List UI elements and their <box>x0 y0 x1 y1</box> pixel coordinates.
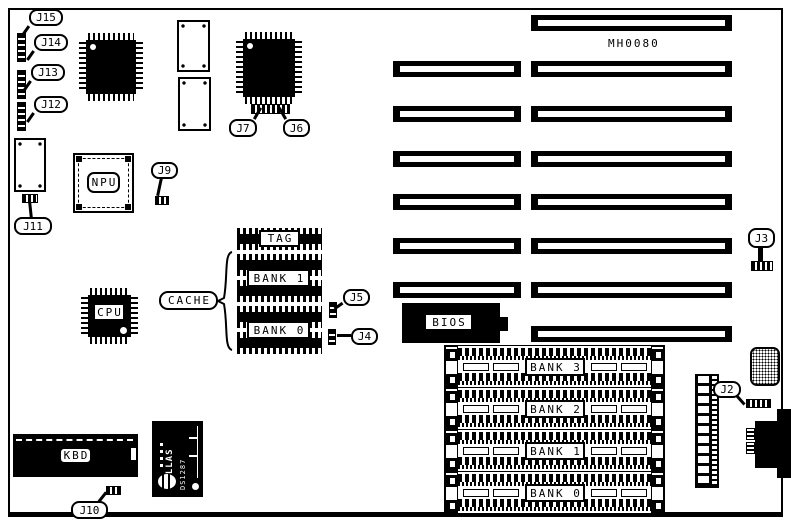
callout-j2-label: J2 <box>720 384 733 395</box>
callout-j3-label: J3 <box>755 233 768 244</box>
dallas-scale-line <box>197 426 198 478</box>
pin-fringe <box>90 337 129 344</box>
pin-fringe <box>295 41 302 95</box>
isa-slot-segment <box>393 282 521 298</box>
isa-slot-segment <box>531 106 732 122</box>
npu-label-text: NPU <box>92 177 118 188</box>
callout-j15: J15 <box>29 9 63 26</box>
callout-j13: J13 <box>31 64 65 81</box>
din-connector-tab <box>746 428 755 440</box>
bank2-label-text: BANK 2 <box>530 404 582 415</box>
cache-group-label: CACHE <box>159 291 218 310</box>
dallas-dot <box>192 483 199 490</box>
memory-bank0-label: BANK 0 <box>525 484 585 502</box>
latch-strip <box>445 346 458 387</box>
pin-fringe <box>79 42 86 92</box>
isa-slot-segment <box>393 238 521 254</box>
bank1-label-text: BANK 1 <box>530 446 582 457</box>
isa-slot-segment <box>531 15 732 31</box>
socket-corner <box>76 156 82 162</box>
socket-bar <box>621 405 647 413</box>
socket-bar <box>463 447 489 455</box>
callout-j6: J6 <box>283 119 310 137</box>
jumper-j3 <box>751 261 773 271</box>
bios-label-text: BIOS <box>432 317 467 328</box>
isa-slot-segment <box>393 151 521 167</box>
socket-bar <box>493 405 519 413</box>
kbd-label: KBD <box>59 447 92 464</box>
isa-slot-segment <box>531 151 732 167</box>
dallas-scale-tick <box>189 455 197 457</box>
pin-fringe <box>131 297 138 335</box>
dallas-small-marks <box>160 443 163 469</box>
callout-j15-label: J15 <box>36 12 56 23</box>
bios-chip-tab <box>500 317 508 331</box>
socket-bar <box>493 363 519 371</box>
cache-bank1-text: BANK 1 <box>254 273 306 284</box>
callout-j11-label: J11 <box>23 221 43 232</box>
callout-j14-label: J14 <box>41 37 61 48</box>
socket-bar <box>591 405 617 413</box>
callout-j2: J2 <box>713 381 741 398</box>
bank3-label-text: BANK 3 <box>530 362 582 373</box>
callout-j5: J5 <box>343 289 370 306</box>
socket-bar <box>463 489 489 497</box>
pin-fringe <box>88 94 134 101</box>
npu-socket: NPU <box>73 153 134 213</box>
callout-tail-j4 <box>337 334 351 337</box>
jumper-block-j12 <box>17 102 26 131</box>
callout-j14: J14 <box>34 34 68 51</box>
socket-bar <box>591 489 617 497</box>
isa-slot-segment <box>531 238 732 254</box>
socket-corner <box>125 156 131 162</box>
isa-slot-segment <box>393 194 521 210</box>
callout-j3: J3 <box>748 228 775 248</box>
pin-fringe <box>88 33 134 40</box>
callout-j4: J4 <box>351 328 378 345</box>
cache-bank0-text: BANK 0 <box>254 325 306 336</box>
memory-bank-3: BANK 3 <box>444 345 665 388</box>
din-connector-tab <box>746 442 755 454</box>
pin-fringe <box>245 97 293 104</box>
callout-j10: J10 <box>71 501 108 519</box>
latch-strip <box>445 472 458 513</box>
pin1-dot <box>120 327 127 334</box>
pin-fringe <box>136 42 143 92</box>
dallas-part-text: DS1287 <box>180 424 187 490</box>
pin1-dot <box>247 43 253 49</box>
latch-strip <box>651 430 664 471</box>
socket-corner <box>76 204 82 210</box>
motherboard-diagram: J15 J14 J13 J12 J7 J6 J9 J11 J5 J4 J3 J2… <box>0 0 791 527</box>
socket-corner <box>125 204 131 210</box>
latch-strip <box>651 388 664 429</box>
kbd-label-text: KBD <box>64 450 90 461</box>
kbd-notch <box>131 448 136 460</box>
cache-label-text: CACHE <box>168 295 211 306</box>
cache-bank0-label: BANK 0 <box>247 321 310 339</box>
cpu-label-text: CPU <box>97 307 123 318</box>
jumper-j10 <box>106 486 121 495</box>
socket-bar <box>493 489 519 497</box>
isa-slot-segment <box>531 326 732 342</box>
callout-j9: J9 <box>151 162 178 179</box>
pin-fringe <box>81 297 88 335</box>
latch-strip <box>445 388 458 429</box>
cpu-chip: CPU <box>81 288 138 344</box>
isa-slot-segment <box>531 194 732 210</box>
cpu-label: CPU <box>94 304 124 320</box>
dallas-part: DS1287 <box>179 459 187 490</box>
callout-j6-label: J6 <box>290 123 303 134</box>
socket-bar <box>621 447 647 455</box>
socket-bar <box>493 447 519 455</box>
jumper-j9 <box>155 196 169 205</box>
callout-j7: J7 <box>229 119 257 137</box>
socket-bar <box>463 405 489 413</box>
dallas-scale-tick <box>189 437 197 439</box>
dallas-logo <box>158 474 176 489</box>
dip-socket <box>178 77 211 131</box>
callout-j7-label: J7 <box>236 123 249 134</box>
pin-fringe <box>245 32 293 39</box>
pin1-dot <box>90 44 96 50</box>
pin-fringe <box>90 288 129 295</box>
socket-bar <box>591 447 617 455</box>
cache-tag-label: TAG <box>259 230 300 247</box>
isa-slot-segment <box>531 61 732 77</box>
callout-j5-label: J5 <box>350 292 363 303</box>
isa-slot-segment <box>393 106 521 122</box>
keyboard-din-connector-body <box>755 421 791 468</box>
memory-bank-block: BANK 3 BANK 2 BANK 1 <box>444 345 665 514</box>
dip-socket <box>177 20 210 72</box>
board-model-text: MH0080 <box>608 37 660 50</box>
callout-tail-j3 <box>758 247 763 261</box>
jumper-block-j13 <box>17 70 26 99</box>
memory-bank3-label: BANK 3 <box>525 358 585 376</box>
cache-bank1-label: BANK 1 <box>247 269 310 287</box>
callout-j10-label: J10 <box>80 505 100 516</box>
memory-bank-1: BANK 1 <box>444 429 665 472</box>
callout-j11: J11 <box>14 217 52 235</box>
bios-label: BIOS <box>424 313 473 331</box>
memory-bank2-label: BANK 2 <box>525 400 585 418</box>
jumper-j2 <box>746 399 771 408</box>
model-text: MH0080 <box>608 37 660 50</box>
memory-bank-0: BANK 0 <box>444 471 665 514</box>
isa-slot-segment <box>531 282 732 298</box>
callout-j12-label: J12 <box>41 99 61 110</box>
latch-strip <box>445 430 458 471</box>
kbd-dashed-line <box>16 439 133 441</box>
qfp-chip-topleft <box>79 33 143 101</box>
pin-fringe <box>236 41 243 95</box>
callout-j13-label: J13 <box>38 67 58 78</box>
callout-j4-label: J4 <box>358 331 371 342</box>
jumper-block-j14 <box>17 33 26 62</box>
npu-label: NPU <box>87 172 120 193</box>
latch-strip <box>651 472 664 513</box>
socket-bar <box>621 489 647 497</box>
socket-bar <box>591 363 617 371</box>
memory-bank1-label: BANK 1 <box>525 442 585 460</box>
bank0-label-text: BANK 0 <box>530 488 582 499</box>
dip-socket <box>14 138 46 192</box>
socket-bar <box>621 363 647 371</box>
qfp-chip-topmiddle <box>236 32 302 104</box>
kbd-chip: KBD <box>13 434 138 477</box>
callout-j12: J12 <box>34 96 68 113</box>
tag-label-text: TAG <box>268 233 294 244</box>
isa-slot-segment <box>393 61 521 77</box>
cache-brace <box>217 250 233 352</box>
latch-strip <box>651 346 664 387</box>
oscillator <box>750 347 780 386</box>
memory-bank-2: BANK 2 <box>444 387 665 430</box>
socket-bar <box>463 363 489 371</box>
dallas-rtc-chip: DALLAS DS1287 <box>152 421 203 497</box>
callout-j9-label: J9 <box>158 165 171 176</box>
jumper-j4 <box>328 329 336 345</box>
